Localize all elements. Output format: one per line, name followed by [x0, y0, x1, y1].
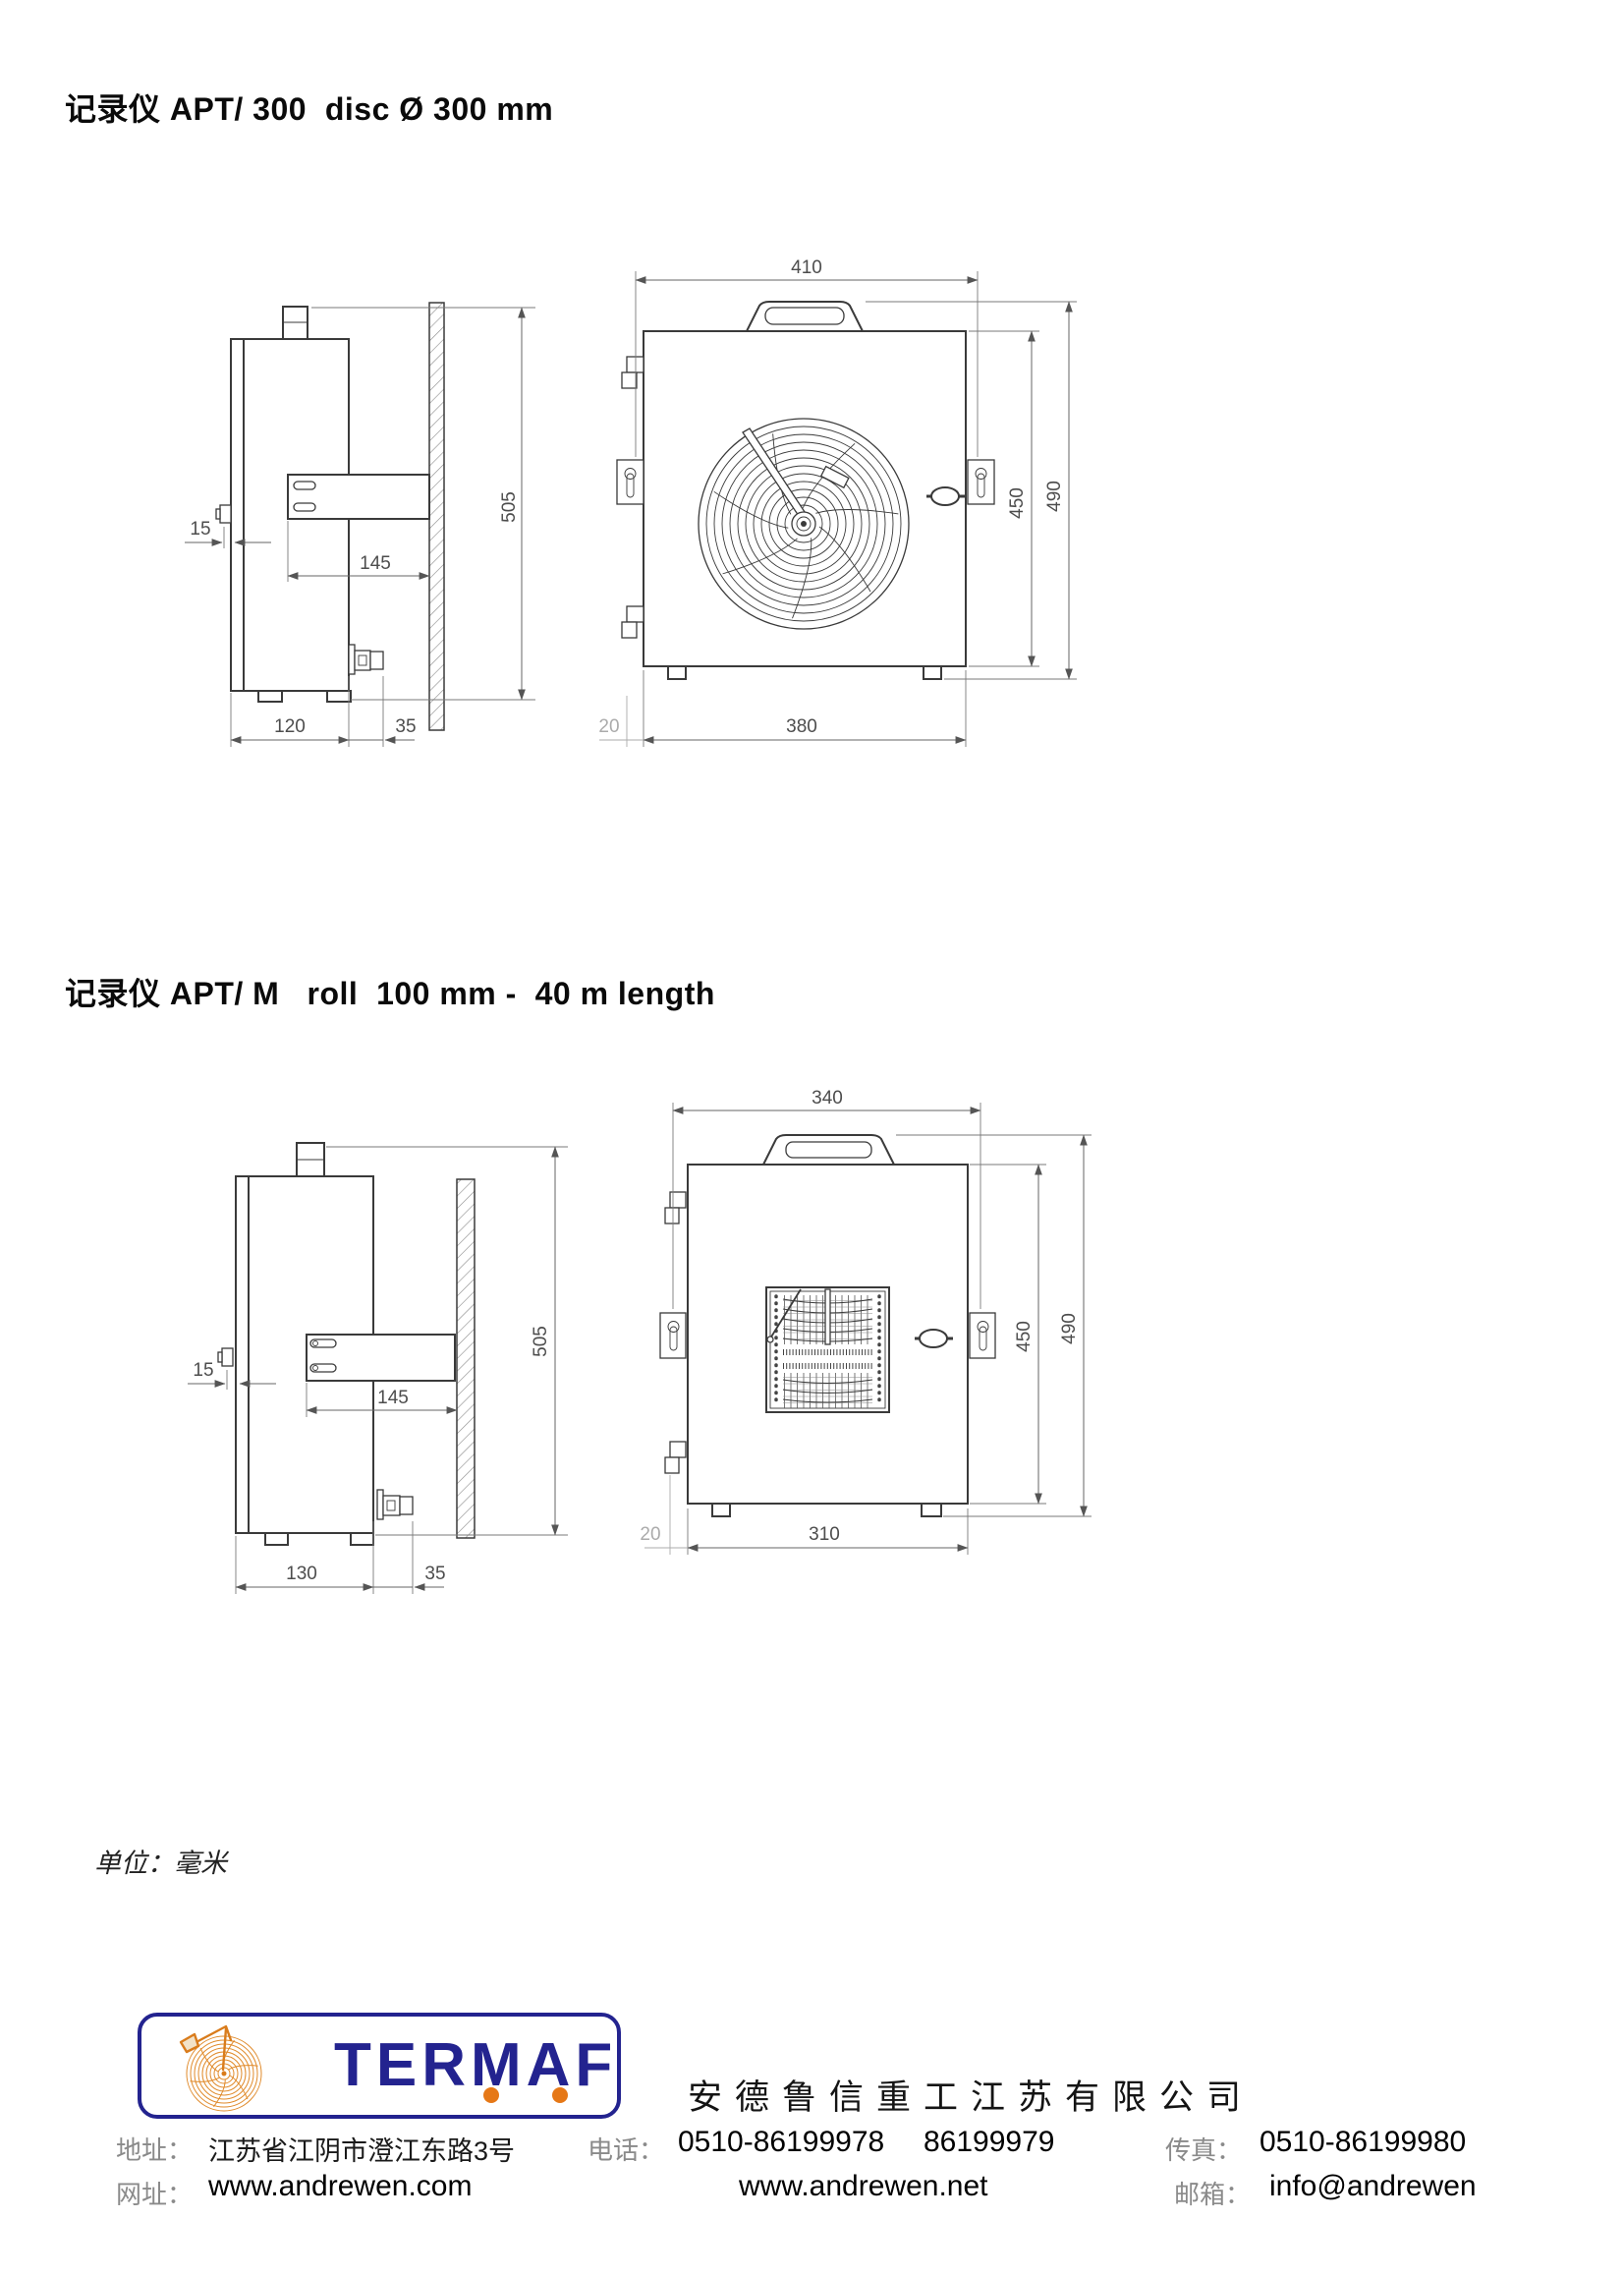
pen-tip	[767, 1337, 773, 1342]
foot	[712, 1504, 730, 1516]
strip-chart-window	[766, 1287, 889, 1412]
dim-label-490: 490	[1059, 1313, 1080, 1344]
logo-orange-dot	[552, 2087, 568, 2103]
termaf-logo: TERMAF	[138, 2013, 621, 2119]
chart-pointer	[825, 1289, 830, 1344]
dim-label-410: 410	[791, 257, 822, 278]
bracket-slot	[294, 482, 315, 489]
mounting-bracket-right	[970, 1313, 995, 1358]
fax-label: 传真：	[1165, 2131, 1242, 2167]
phone-label: 电话：	[588, 2131, 664, 2167]
mounting-bracket-left	[617, 460, 644, 504]
fax-value: 0510-86199980	[1260, 2126, 1466, 2159]
website-value-1: www.andrewen.com	[208, 2170, 472, 2203]
phone-value-1: 0510-86199978	[678, 2126, 884, 2159]
dim-label-20: 20	[598, 716, 619, 737]
dim-label-145: 145	[377, 1388, 409, 1408]
section2-title: 记录仪 APT/ M roll 100 mm - 40 m length	[65, 969, 715, 1014]
section1-title: 记录仪 APT/ 300 disc Ø 300 mm	[65, 85, 553, 130]
hinge-pin-tip	[216, 509, 220, 519]
dim-label-15: 15	[193, 1360, 213, 1381]
units-note: 单位：毫米	[94, 1842, 227, 1880]
dim-label-380: 380	[786, 716, 817, 737]
logo-orange-dot	[483, 2087, 499, 2103]
dim-label-130: 130	[286, 1564, 317, 1584]
dim-label-490: 490	[1044, 481, 1065, 512]
mounting-bracket-right	[968, 460, 994, 504]
dim-label-450: 450	[1007, 487, 1028, 519]
hinge-pin	[220, 505, 231, 523]
apt300-technical-drawing: 505 15 145 120 35	[98, 197, 1258, 806]
foot	[265, 1533, 288, 1545]
dim-label-15: 15	[190, 519, 210, 540]
door-panel-side	[236, 1176, 249, 1533]
foot	[922, 1504, 941, 1516]
foot	[924, 666, 941, 679]
latch-side	[349, 645, 383, 674]
dim-label-310: 310	[809, 1524, 840, 1545]
mounting-bracket-left	[660, 1313, 686, 1358]
handle-grip-hole	[765, 308, 844, 324]
dim-label-505: 505	[531, 1326, 551, 1357]
aptm-side-view: 505 15 145 130 35	[188, 1143, 568, 1594]
dim-label-505: 505	[499, 491, 520, 523]
bracket-slot	[310, 1364, 336, 1372]
address-label: 地址：	[116, 2131, 193, 2167]
foot	[258, 691, 282, 702]
apt300-front-view: 410 450 490 380 20	[598, 257, 1077, 747]
dim-label-145: 145	[360, 553, 391, 574]
aptm-front-view: 340 450 490 310 20	[640, 1088, 1092, 1555]
foot	[668, 666, 686, 679]
website-value-2: www.andrewen.net	[739, 2170, 987, 2203]
apt300-side-view: 505 15 145 120 35	[185, 303, 535, 747]
latch-side	[377, 1490, 413, 1519]
hinge-pin-tip	[218, 1352, 222, 1362]
termaf-logo-text: TERMAF	[334, 2030, 617, 2100]
chart-disc	[699, 419, 909, 629]
website-label: 网址：	[116, 2175, 193, 2211]
dim-label-450: 450	[1014, 1321, 1035, 1352]
company-name: 安德鲁信重工江苏有限公司	[688, 2070, 1254, 2120]
dim-label-120: 120	[274, 716, 306, 737]
wall-hatch	[457, 1179, 475, 1538]
dim-label-340: 340	[812, 1088, 843, 1109]
door-panel-side	[231, 339, 244, 691]
wall-hatch	[429, 303, 444, 730]
address-value: 江苏省江阴市澄江东路3号	[208, 2130, 515, 2168]
dim-label-35: 35	[395, 716, 416, 737]
foot	[351, 1533, 373, 1545]
email-value: info@andrewen	[1269, 2170, 1477, 2203]
phone-value-2: 86199979	[924, 2126, 1054, 2159]
bracket-slot	[294, 503, 315, 511]
handle-grip-hole	[786, 1142, 871, 1158]
bracket-slot	[310, 1339, 336, 1347]
foot	[327, 691, 351, 702]
chart-grid-lower	[783, 1373, 872, 1408]
top-knob	[283, 307, 308, 339]
dim-label-20: 20	[640, 1524, 660, 1545]
termaf-logo-disc-icon	[147, 2017, 324, 2113]
email-label: 邮箱：	[1174, 2175, 1251, 2211]
disc-hub	[801, 521, 807, 527]
dim-label-35: 35	[424, 1564, 445, 1584]
datasheet-page: 记录仪 APT/ 300 disc Ø 300 mm	[0, 0, 1624, 2276]
hinge-pin	[222, 1348, 233, 1366]
aptm-technical-drawing: 505 15 145 130 35	[98, 1042, 1258, 1671]
